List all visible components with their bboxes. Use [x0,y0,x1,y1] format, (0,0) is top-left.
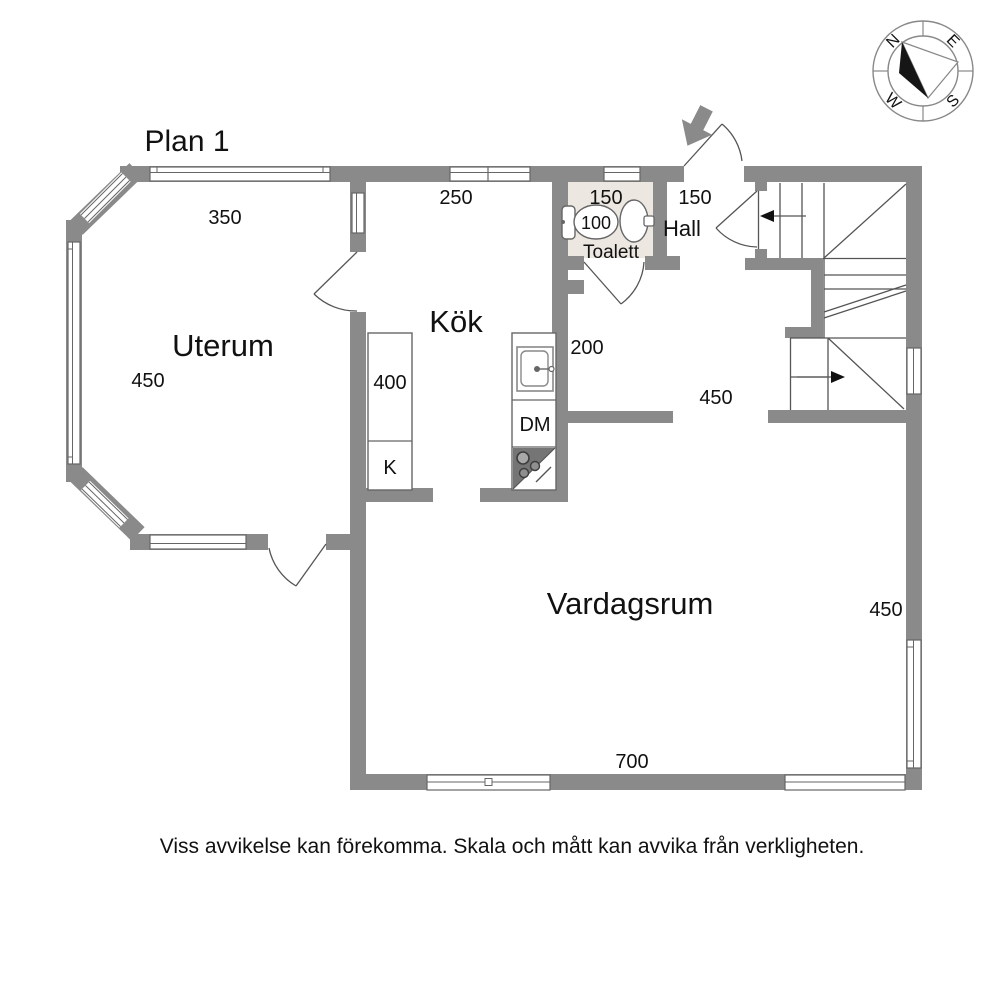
kitchen-sink-icon [517,347,554,391]
door-uterum-kok [314,252,357,311]
dim-vardagsrum-right: 450 [869,599,902,621]
fixture-dishwasher-label: DM [519,414,550,436]
dim-hall-width: 150 [678,187,711,209]
plan-title: Plan 1 [144,125,229,158]
door-toalett [584,262,644,304]
wall-stub-stairdoor-top [755,182,767,191]
window-uterum-bottom [150,535,246,549]
wall-stair-south [768,410,906,423]
wall-stub-toalett-sw [552,280,584,294]
stair-down-arrow-icon [831,371,845,383]
dim-uterum-top: 350 [208,207,241,229]
window-uterum-left [68,242,80,464]
entry-arrow-icon [672,101,721,154]
window-uterum-top [150,167,330,181]
window-right-lower [907,640,921,768]
dim-toalett-width: 150 [589,187,622,209]
dim-kok-passage: 200 [570,337,603,359]
room-label-vardagsrum: Vardagsrum [547,586,714,621]
wall-hall-south [745,258,823,270]
dim-vardagsrum-bottom: 700 [615,751,648,773]
compass-rose: N E S W [873,21,973,121]
window-bay-angle-top [81,174,130,223]
stair-up-arrow-icon [760,210,774,222]
toilet-flush-icon [561,220,565,224]
floorplan-drawing: N E S W Plan 1 Uterum Kök Vardagsrum Toa… [0,0,992,992]
wall-toalett-bottom-west [568,256,584,270]
room-label-hall: Hall [663,216,701,241]
wall-vardagsrum-west [350,494,366,790]
wall-corridor-south [563,411,673,423]
wall-stub-stairdoor-bottom [755,249,767,258]
wall-uterum-kok-lower [350,312,366,502]
window-kok-top [450,167,530,181]
fixture-fridge-label: K [383,457,397,479]
window-bottom-left [427,775,550,790]
dim-toalett-depth: 100 [581,213,611,233]
dim-counter-left: 400 [373,372,406,394]
compass-west: W [881,90,904,113]
window-bottom-right [785,775,905,790]
wall-top-right [744,166,922,182]
room-label-kok: Kök [429,304,483,339]
toalett-tap-icon [644,216,654,226]
disclaimer-text: Viss avvikelse kan förekomma. Skala och … [160,835,865,858]
wall-toalett-bottom-east [645,256,680,270]
dim-uterum-left: 450 [131,370,164,392]
wall-stub-stair [785,327,823,338]
door-stairs [716,191,757,247]
room-label-toalett: Toalett [583,242,640,263]
window-right-upper [907,348,921,394]
window-toalett-top [604,167,640,181]
window-uterum-kok-interior [352,193,364,233]
compass-east: E [943,32,963,52]
dim-kok-top: 250 [439,187,472,209]
compass-north: N [883,31,903,51]
door-uterum-exterior [269,544,326,586]
compass-south: S [944,92,964,112]
dim-corridor: 450 [699,387,732,409]
room-label-uterum: Uterum [172,328,274,363]
floorplan-page: N E S W Plan 1 Uterum Kök Vardagsrum Toa… [0,0,992,992]
walls [66,166,922,790]
wall-uterum-bottom-east [326,534,350,550]
